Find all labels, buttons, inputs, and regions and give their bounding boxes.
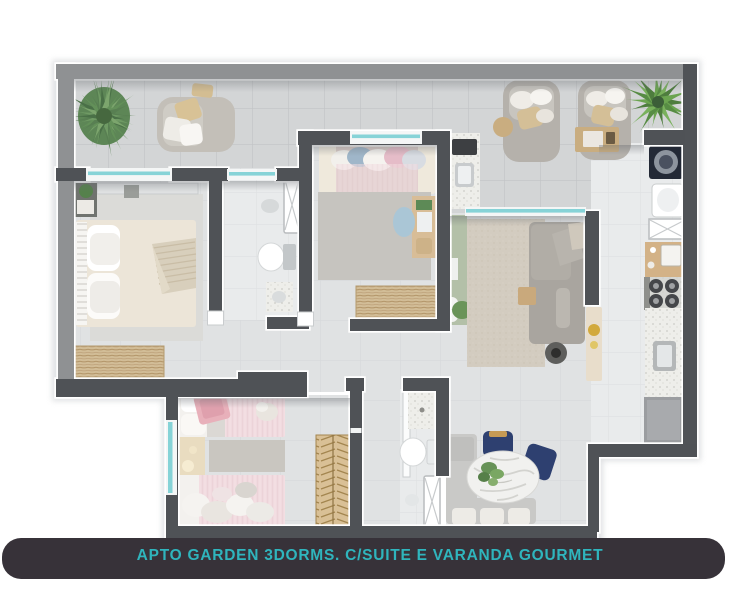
svg-text:APTO GARDEN 3DORMS. C/SUITE E: APTO GARDEN 3DORMS. C/SUITE E VARANDA GO… (137, 547, 604, 564)
